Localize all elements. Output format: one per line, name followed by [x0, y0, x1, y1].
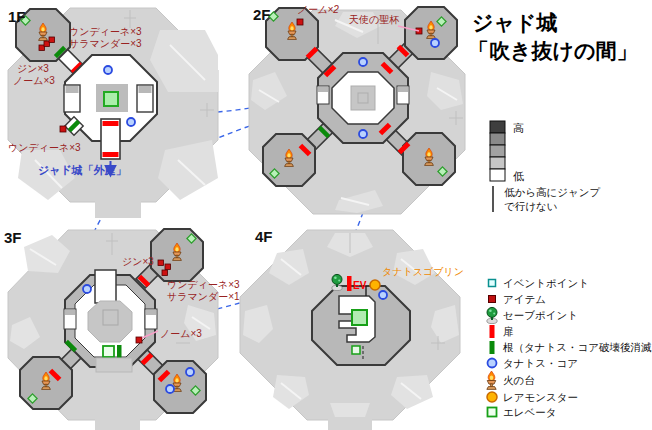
- elevation-legend: 高 低 低から高にジャンプ で行けない: [490, 121, 600, 212]
- map-floor-3f: 3F ジン×3 ウンディーネ×3 サラマンダー×1 ノーム×3: [4, 229, 240, 430]
- f3-north-stair: [95, 270, 116, 303]
- title-line2: 「吹き抜けの間」: [468, 39, 637, 63]
- rare-monster-icon: [487, 392, 497, 402]
- save-point-icon: [332, 274, 342, 290]
- event-point-icon: [489, 280, 496, 287]
- door-bar-icon: [347, 276, 352, 291]
- legend-label: レアモンスター: [503, 391, 578, 403]
- thanatos-core-icon: [104, 66, 112, 74]
- legend-label: タナトス・コア: [503, 357, 578, 369]
- legend-label: セーブポイント: [503, 309, 578, 321]
- legend-label: 扉: [503, 325, 514, 337]
- map-floor-4f: 4F EV タナトスゴブリン: [240, 228, 464, 430]
- elevator-icon: [104, 92, 118, 106]
- symbol-legend: イベントポイント アイテム セーブポイント 扉 根（タナトス・コア破壊後消滅） …: [487, 277, 652, 418]
- elevator-icon: [488, 408, 497, 417]
- f2-treasure-label: 天使の聖杯: [349, 14, 399, 25]
- thanatos-core-icon: [166, 385, 174, 393]
- f1-enemy-label: サラマンダー×3: [69, 38, 142, 49]
- door-bar-icon: [103, 121, 119, 126]
- f1-enemy-label: ウンディーネ×3: [8, 142, 81, 153]
- elevator-icon: [103, 346, 114, 357]
- item-icon: [489, 296, 496, 303]
- f3-enemy-label: ウンディーネ×3: [167, 279, 240, 290]
- thanatos-core-icon: [359, 130, 367, 138]
- f4-ev-label: EV: [353, 280, 367, 291]
- rare-monster-icon: [370, 280, 380, 290]
- f3-enemy-label: サラマンダー×1: [167, 291, 240, 302]
- thanatos-core-icon: [431, 39, 439, 47]
- page-title: ジャド城 「吹き抜けの間」: [468, 11, 637, 63]
- f1-enemy-label: ウンディーネ×3: [69, 26, 142, 37]
- floor-1f-label: 1F: [8, 8, 26, 25]
- floor-3f-label: 3F: [4, 229, 22, 246]
- elevation-low-label: 低: [513, 170, 524, 182]
- floor-4f-label: 4F: [255, 228, 273, 245]
- door-bar-icon: [103, 152, 119, 157]
- title-line1: ジャド城: [472, 11, 557, 34]
- save-point-icon: [487, 307, 497, 323]
- f1-enemy-label: ジン×3: [17, 63, 49, 74]
- thanatos-core-icon: [127, 118, 135, 126]
- thanatos-core-icon: [488, 359, 497, 368]
- f3-enemy-label: ノーム×3: [160, 328, 202, 339]
- root-bar-icon: [117, 345, 122, 358]
- f3-south-stub: [96, 358, 132, 372]
- f2-atrium-opening: [351, 86, 375, 110]
- f1-enemy-label: ノーム×3: [13, 75, 55, 86]
- thanatos-core-icon: [379, 291, 387, 299]
- legend-label: 根（タナトス・コア破壊後消滅）: [503, 341, 652, 353]
- map-floor-2f: 2F ノーム×2 天使の聖杯: [249, 4, 465, 214]
- elevation-scale: [490, 121, 505, 181]
- root-bar-icon: [490, 341, 495, 354]
- f2-enemy-label: ノーム×2: [297, 4, 339, 15]
- door-bar-icon: [490, 325, 495, 338]
- legend-label: アイテム: [503, 293, 546, 305]
- jump-note-text: で行けない: [504, 200, 557, 212]
- f3-center-platform: [88, 301, 132, 342]
- f4-rare-enemy-label: タナトスゴブリン: [382, 266, 464, 277]
- thanatos-core-icon: [359, 58, 367, 66]
- fire-stand-icon: [487, 371, 496, 389]
- thanatos-core-icon: [186, 368, 194, 376]
- f1-exit-label: ジャド城「外庭」: [38, 164, 127, 176]
- thanatos-core-icon: [83, 285, 91, 293]
- event-point-icon: [352, 346, 360, 354]
- floor-2f-label: 2F: [253, 6, 271, 23]
- legend-label: 火の台: [503, 374, 535, 386]
- map-canvas: 1F ウンディーネ×3 サラマンダー×3 ジン×3 ノーム×3 ウンディーネ×3…: [0, 0, 652, 430]
- jade-castle-atrium-map: 1F ウンディーネ×3 サラマンダー×3 ジン×3 ノーム×3 ウンディーネ×3…: [0, 0, 652, 430]
- item-icon: [297, 19, 303, 25]
- legend-label: イベントポイント: [503, 277, 589, 289]
- legend-label: エレベータ: [503, 406, 556, 418]
- elevation-high-label: 高: [513, 122, 524, 134]
- item-icon: [60, 126, 66, 132]
- f3-enemy-label: ジン×3: [122, 256, 154, 267]
- jump-note-text: 低から高にジャンプ: [504, 186, 600, 198]
- map-floor-1f: 1F ウンディーネ×3 サラマンダー×3 ジン×3 ノーム×3 ウンディーネ×3…: [8, 8, 218, 218]
- elevator-icon: [352, 310, 367, 325]
